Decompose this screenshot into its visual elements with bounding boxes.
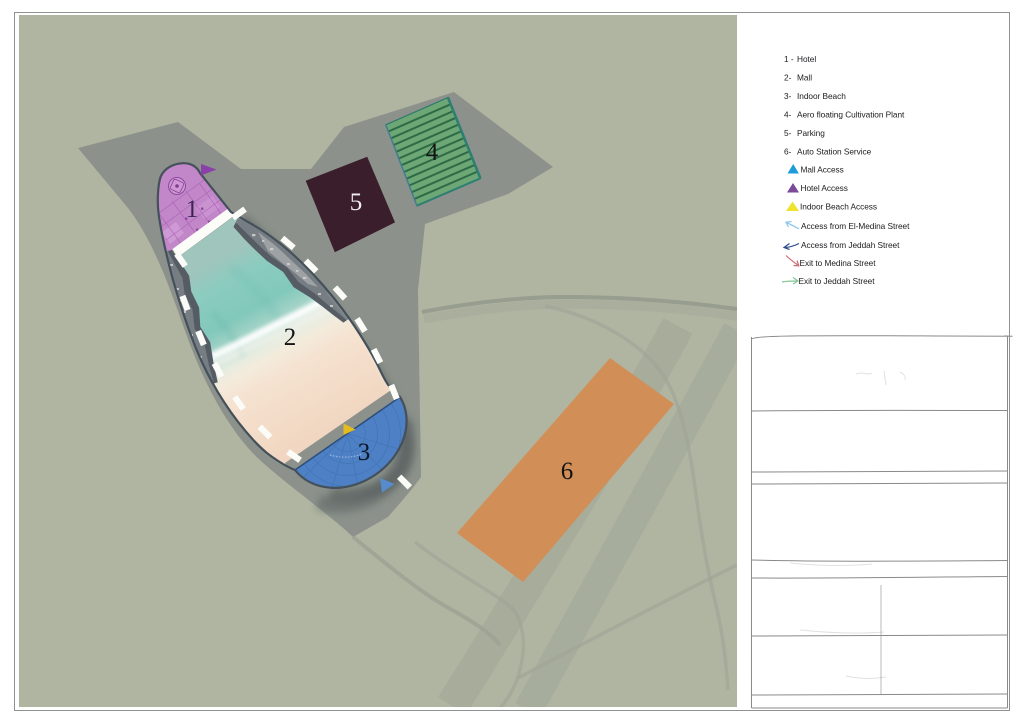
svg-text:3: 3 — [358, 439, 371, 466]
svg-text:4: 4 — [426, 139, 439, 166]
svg-text:Access from Jeddah Street: Access from Jeddah Street — [801, 240, 900, 250]
svg-text:Exit to Medina Street: Exit to Medina Street — [800, 258, 877, 268]
svg-text:3-: 3- — [784, 91, 792, 101]
svg-text:Indoor Beach: Indoor Beach — [797, 91, 846, 101]
svg-text:6-: 6- — [784, 147, 792, 157]
svg-text:Indoor Beach Access: Indoor Beach Access — [800, 202, 877, 212]
svg-text:5-: 5- — [784, 128, 792, 138]
svg-text:Exit to Jeddah Street: Exit to Jeddah Street — [799, 276, 876, 286]
svg-text:Access from El-Medina Street: Access from El-Medina Street — [801, 221, 910, 231]
svg-text:6: 6 — [561, 458, 574, 485]
svg-text:Mall: Mall — [797, 73, 812, 83]
svg-text:5: 5 — [350, 189, 363, 216]
svg-text:Mall Access: Mall Access — [801, 165, 844, 175]
svg-text:1 -: 1 - — [784, 54, 794, 64]
svg-text:4-: 4- — [784, 110, 792, 120]
svg-text:2-: 2- — [784, 73, 792, 83]
svg-text:Aero floating Cultivation Plan: Aero floating Cultivation Plant — [797, 110, 905, 120]
svg-text:2: 2 — [284, 324, 297, 351]
svg-text:Hotel Access: Hotel Access — [801, 183, 848, 193]
svg-text:Parking: Parking — [797, 128, 825, 138]
svg-text:Auto Station Service: Auto Station Service — [797, 147, 872, 157]
svg-text:Hotel: Hotel — [797, 54, 816, 64]
svg-text:1: 1 — [186, 196, 199, 223]
